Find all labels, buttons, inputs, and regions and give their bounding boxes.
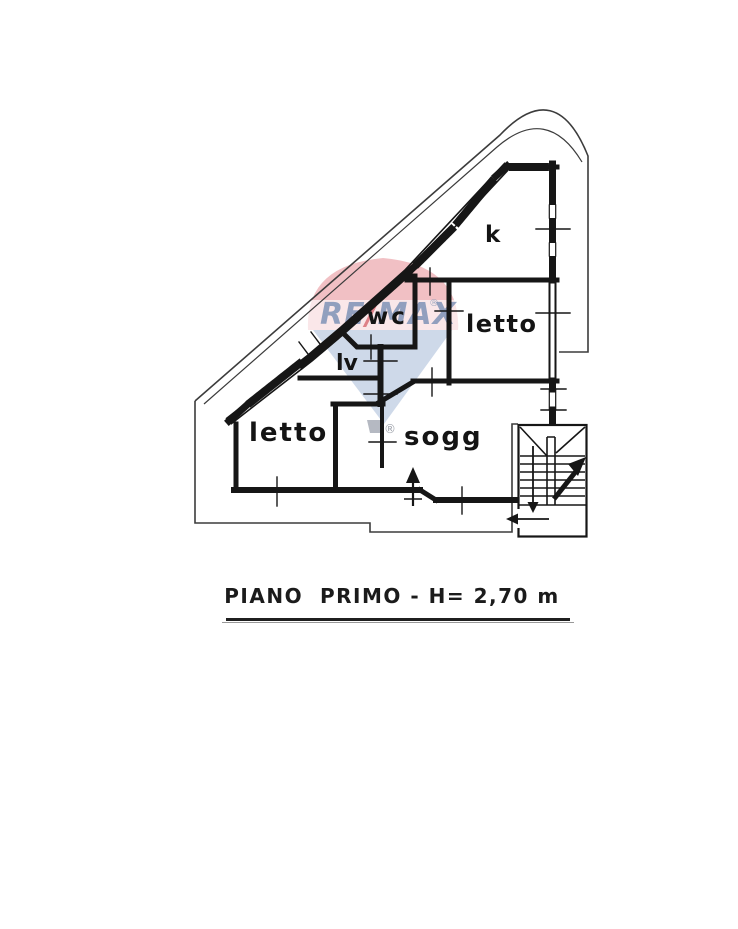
outline-bottom (195, 401, 518, 532)
room-label-living: sogg (404, 422, 483, 452)
floor-caption: PIANO PRIMO - H= 2,70 m (212, 584, 572, 608)
room-label-kitchen: k (485, 222, 501, 248)
room-label-bedroom-right: letto (466, 310, 537, 338)
watermark-registered-bottom: ® (384, 422, 396, 436)
caption-underline (226, 618, 570, 621)
stairwell (506, 425, 587, 537)
room-label-wc: wc (367, 304, 408, 330)
scanned-floor-plan-page: RE/MAX ® ® (0, 0, 738, 929)
floor-plan-drawing: RE/MAX ® ® (0, 0, 738, 929)
right-wall-bedroom (550, 280, 556, 381)
room-label-laundry: lv (336, 351, 359, 376)
entrance-arrow-icon (404, 467, 422, 506)
caption-underline-shadow (222, 622, 574, 623)
room-label-bedroom-left: letto (249, 418, 328, 448)
watermark-registered-top: ® (429, 298, 439, 309)
